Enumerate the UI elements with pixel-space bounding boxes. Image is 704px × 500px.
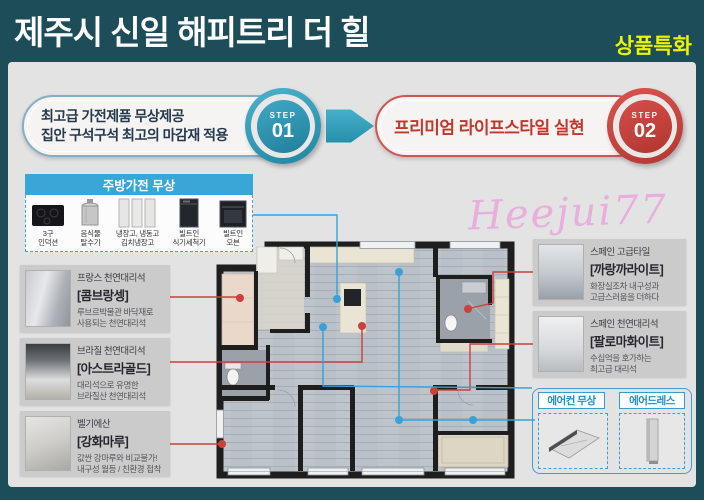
material-name: [콤브랑셍]: [77, 285, 165, 304]
material-origin: 벨기에산: [77, 416, 165, 430]
material-desc: 화장실조차 내구성과 고급스러움을 더하다: [590, 281, 681, 303]
flyer-page: 제주시 신일 해피트리 더 힐 상품특화 최고급 가전제품 무상제공 집안 구석…: [0, 0, 704, 500]
kitchen-item-dishwasher: 빌트인 식기세척기: [173, 198, 206, 247]
material-card-text: 스페인 고급타일 [까랑까라이트] 화장실조차 내구성과 고급스러움을 더하다: [590, 244, 681, 300]
induction-icon: [31, 198, 65, 228]
step2-number: 02: [634, 121, 656, 141]
material-card-laminate-floor: 벨기에산 [강화마루] 값싼 강마루와 비교불가! 내구성 월등 / 친환경 접…: [20, 411, 170, 476]
step1-text: 최고급 가전제품 무상제공 집안 구석구석 최고의 마감재 적용: [41, 107, 228, 145]
kitchen-appliance-box: 주방가전 무상 3구 인덕션 음식물 탈수기 냉장고, 냉동고 김치냉장고: [25, 174, 253, 252]
step1-circle-ring: STEP 01: [251, 94, 315, 158]
page-title: 제주시 신일 해피트리 더 힐: [14, 6, 370, 54]
kitchen-box-title: 주방가전 무상: [25, 174, 253, 195]
free-dresser-title: 에어드레스: [619, 392, 685, 409]
material-origin: 브라질 천연대리석: [77, 343, 165, 357]
step1-circle: STEP 01: [245, 88, 321, 164]
step2-circle-core: STEP 02: [619, 100, 672, 153]
kitchen-box-body: 3구 인덕션 음식물 탈수기 냉장고, 냉동고 김치냉장고 빌트인 식기세척기: [25, 195, 253, 252]
material-origin: 프랑스 천연대리석: [77, 270, 165, 284]
interior-photo-thumbnail: [538, 316, 584, 372]
ac-unit-icon: [543, 418, 603, 464]
material-card-combransheng: 프랑스 천연대리석 [콤브랑셍] 루브르박물관 바닥재로 사용되는 천연대리석: [20, 265, 170, 332]
free-dresser-box: [619, 413, 685, 469]
kitchen-item-label: 빌트인 식기세척기: [173, 229, 206, 247]
material-card-text: 프랑스 천연대리석 [콤브랑셍] 루브르박물관 바닥재로 사용되는 천연대리석: [77, 270, 165, 327]
food-dehydrator-icon: [78, 198, 102, 228]
free-ac-box: [538, 413, 608, 469]
material-desc: 값싼 강마루와 비교불가! 내구성 월등 / 친환경 접착: [77, 453, 165, 475]
step1-line1: 최고급 가전제품 무상제공: [41, 107, 228, 126]
interior-photo-thumbnail: [538, 244, 584, 300]
plan-kitchen-counter: [306, 247, 414, 263]
step2-circle: STEP 02: [607, 88, 683, 164]
floor-plan: [210, 235, 520, 481]
material-name: [팔로마화이트]: [590, 331, 681, 350]
step1-line2: 집안 구석구석 최고의 마감재 적용: [41, 126, 228, 145]
interior-photo-thumbnail: [25, 343, 71, 400]
kitchen-item-label: 빌트인 오븐: [223, 229, 243, 247]
material-card-text: 브라질 천연대리석 [아스트라골드] 대리석으로 유명한 브라질산 천연대리석: [77, 343, 165, 400]
step1-number: 01: [272, 121, 294, 141]
plan-pantry: [222, 274, 254, 346]
free-ac-title: 에어컨 무상: [538, 392, 605, 409]
material-card-text: 스페인 천연대리석 [팔로마화이트] 수십억을 호가하는 최고급 대리석: [590, 316, 681, 372]
kitchen-item-refrigerator: 냉장고, 냉동고 김치냉장고: [116, 198, 159, 247]
kitchen-item-oven: 빌트인 오븐: [219, 198, 247, 247]
interior-photo-thumbnail: [25, 270, 71, 327]
step2-line1: 프리미엄 라이프스타일 실현: [394, 114, 584, 139]
material-name: [강화마루]: [77, 431, 165, 450]
special-feature-badge: 상품특화: [615, 30, 692, 60]
air-dresser-icon: [640, 416, 664, 466]
material-name: [아스트라골드]: [77, 358, 165, 377]
material-card-astra-gold: 브라질 천연대리석 [아스트라골드] 대리석으로 유명한 브라질산 천연대리석: [20, 338, 170, 405]
material-name: [까랑까라이트]: [590, 259, 681, 278]
material-card-text: 벨기에산 [강화마루] 값싼 강마루와 비교불가! 내구성 월등 / 친환경 접…: [77, 416, 165, 471]
material-desc: 대리석으로 유명한 브라질산 천연대리석: [77, 380, 165, 402]
kitchen-item-label: 3구 인덕션: [38, 229, 58, 247]
material-card-carrara-lite: 스페인 고급타일 [까랑까라이트] 화장실조차 내구성과 고급스러움을 더하다: [533, 239, 686, 305]
material-origin: 스페인 천연대리석: [590, 316, 681, 330]
dishwasher-icon: [179, 198, 199, 228]
interior-photo-thumbnail: [25, 416, 71, 471]
step2-tag: STEP: [632, 111, 659, 120]
step2-circle-ring: STEP 02: [613, 94, 677, 158]
material-desc: 루브르박물관 바닥재로 사용되는 천연대리석: [77, 307, 165, 329]
step1-circle-core: STEP 01: [257, 100, 310, 153]
material-desc: 수십억을 호가하는 최고급 대리석: [590, 353, 681, 375]
step1-tag: STEP: [270, 111, 297, 120]
kitchen-item-label: 냉장고, 냉동고 김치냉장고: [116, 229, 159, 247]
oven-icon: [219, 198, 247, 228]
kitchen-item-dehydrator: 음식물 탈수기: [78, 198, 102, 247]
kitchen-item-label: 음식물 탈수기: [81, 229, 101, 247]
refrigerator-icon: [118, 198, 156, 228]
material-card-paloma-white: 스페인 천연대리석 [팔로마화이트] 수십억을 호가하는 최고급 대리석: [533, 311, 686, 377]
plan-balcony: [438, 433, 508, 467]
watermark: Heejui77: [467, 187, 669, 240]
material-origin: 스페인 고급타일: [590, 244, 681, 258]
kitchen-item-induction: 3구 인덕션: [31, 198, 65, 247]
